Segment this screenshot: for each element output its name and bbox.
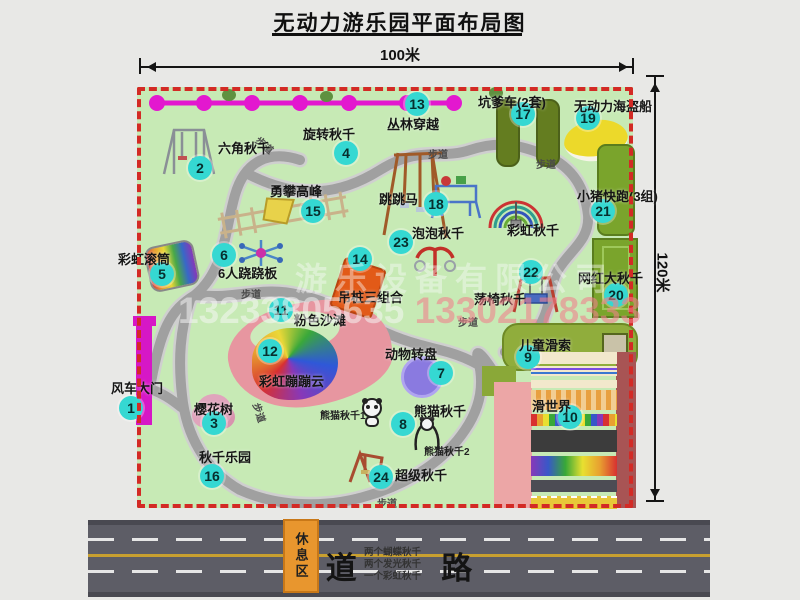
panda-swing-label: 熊猫秋千 [414,401,466,420]
badge-23: 23 [389,230,413,254]
pirate-ship-label: 无动力海盗船 [574,96,652,115]
arrow-left-icon [142,62,156,72]
slide-lane-icon [531,496,617,509]
badge-16: 16 [200,464,224,488]
bubble-swing-label: 泡泡秋千 [412,223,464,242]
hexagon-swing-label: 六角秋千 [218,138,270,157]
rest-area-label: 休息区 [292,532,311,580]
swing-note-3: 一个彩虹秋千 [364,571,421,583]
rainbow-cloud-label: 彩虹蹦蹦云 [259,371,324,390]
bush-icon [222,89,236,101]
cherry-tree-label: 樱花树 [194,399,233,418]
bush-icon [320,91,333,102]
kids-zipline-label: 儿童滑索 [519,335,571,354]
footpath-label: 步道 [377,495,397,510]
bubble-swing-pole-icon [412,238,458,278]
title-underline [272,33,522,36]
slide-lane-icon [531,380,617,388]
park-map: 休息区 步道 步道 步道 步道 步道 步道 步道 六角秋千 旋转秋千 丛林穿越 … [137,87,633,508]
slide-lane-icon [531,480,617,492]
rainbow-swing-label: 彩虹秋千 [507,220,559,239]
footpath-label: 步道 [241,286,261,301]
badge-12: 12 [258,339,282,363]
badge-18: 18 [424,192,448,216]
badge-22: 22 [519,260,543,284]
dimension-tick [646,75,664,77]
jungle-crossing-label: 丛林穿越 [387,114,439,133]
slide-world-wall-icon [616,352,636,508]
seesaw-label: 6人跷跷板 [218,263,277,282]
badge-1: 1 [119,396,143,420]
pink-beach-label: 粉色沙滩 [294,310,346,329]
dimension-tick [139,58,141,74]
footpath-label: 步道 [458,314,478,329]
arrow-down-icon [650,489,660,503]
arrow-right-icon [619,62,633,72]
badge-24: 24 [369,465,393,489]
windmill-gate-label: 风车大门 [111,378,163,397]
big-swing-label: 网红大秋千 [578,268,643,287]
slide-lane-icon [531,366,617,376]
super-swing-label: 超级秋千 [395,465,447,484]
swing-note-1: 两个蝴蝶秋千 [364,547,421,559]
badge-11: 11 [269,298,293,322]
slide-world-pink-icon [494,382,532,508]
badge-15: 15 [301,199,325,223]
climbing-peak-label: 勇攀高峰 [270,181,322,200]
badge-14: 14 [348,247,372,271]
rest-area-box: 休息区 [283,519,319,593]
dimension-top-label: 100米 [340,44,460,65]
panda-swing-2-label: 熊猫秋千2 [424,443,470,458]
arrow-up-icon [650,78,660,92]
swing-park-label: 秋千乐园 [199,447,251,466]
badge-4: 4 [334,141,358,165]
swing-note-2: 两个发光秋千 [364,559,421,571]
slide-lane-icon [531,430,617,452]
badge-2: 2 [188,156,212,180]
chair-swing-label: 荡椅秋千 [474,289,526,308]
badge-13: 13 [405,92,429,116]
badge-7: 7 [429,361,453,385]
swing-park-notes: 两个蝴蝶秋千 两个发光秋千 一个彩虹秋千 [364,547,421,583]
dimension-right-label: 120米 [653,252,674,292]
rainbow-roller-label: 彩虹滚筒 [118,249,170,268]
piggy-run-label: 小猪快跑(3组) [577,186,658,205]
slide-world-label: 滑世界 [532,396,571,415]
dimension-top-line [140,66,633,68]
pit-car-label: 坑爹车(2套) [478,92,546,111]
jumping-horse-label: 跳跳马 [379,189,418,208]
footpath-label: 步道 [536,156,556,171]
badge-8: 8 [391,412,415,436]
hanging-pile-label: 吊桩三组合 [338,287,403,306]
rotating-swing-label: 旋转秋千 [303,124,355,143]
slide-lane-icon [531,456,617,476]
footpath-label: 步道 [428,146,448,161]
lane-line [88,538,710,541]
panda-swing-1-label: 熊猫秋千1 [320,407,366,422]
animal-carousel-label: 动物转盘 [385,344,437,363]
